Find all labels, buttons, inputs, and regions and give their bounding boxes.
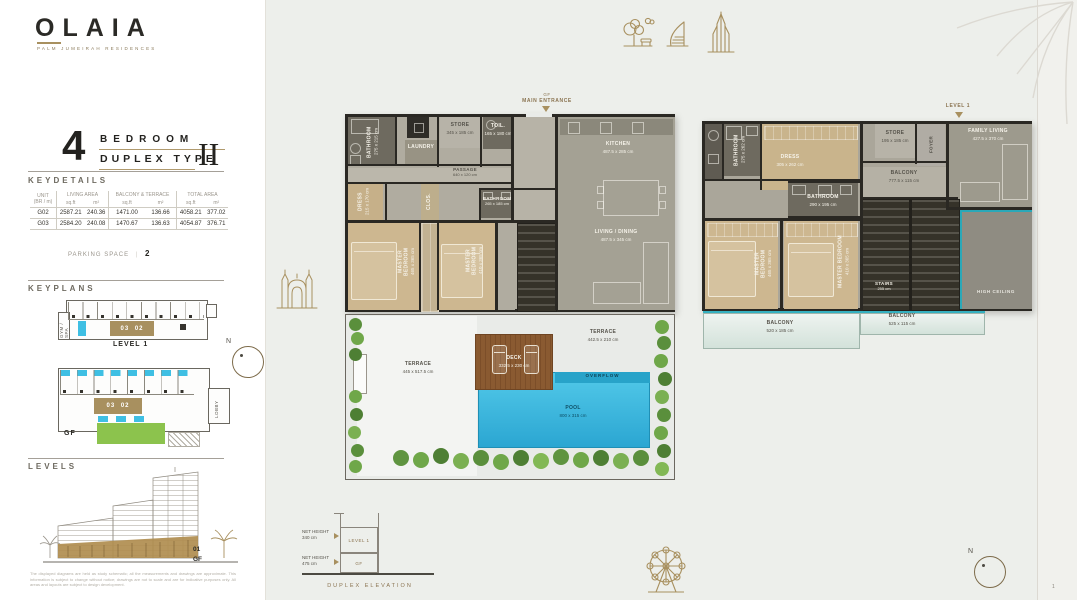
level-01-label: 01	[193, 546, 200, 553]
keyplan-level1: 03 02 GYM / SPA LEVEL 1	[58, 296, 216, 352]
closet	[421, 184, 439, 220]
kitchen-counter	[560, 119, 673, 135]
sub-sqft: sq.ft	[177, 199, 205, 208]
wall	[419, 223, 421, 310]
cell: 376.71	[204, 219, 228, 230]
keydetails-table: UNIT (BR / m) LIVING AREA BALCONY & TERR…	[30, 191, 228, 230]
wall	[480, 117, 482, 167]
level-gf-label: GF	[193, 556, 202, 563]
cell: 240.36	[84, 208, 108, 219]
gym-spa-label: GYM / SPA	[59, 314, 69, 338]
keyplans-heading: KEYPLANS	[28, 284, 96, 293]
cell: 136.63	[145, 219, 177, 230]
entrance-arrow	[542, 106, 550, 112]
store-room	[875, 124, 915, 158]
keydetails-heading: KEYDETAILS	[28, 176, 108, 185]
sun-lounger	[524, 345, 539, 374]
pool-deck	[475, 334, 553, 390]
cell: 377.02	[204, 208, 228, 219]
entrance-door-gap	[526, 113, 552, 117]
inner-balcony	[862, 167, 946, 197]
wall	[348, 182, 511, 184]
entry-foyer	[514, 117, 555, 221]
family-living-room	[948, 124, 1032, 208]
lobby-label: LOBBY	[214, 392, 219, 418]
brand-logo-underline	[37, 42, 61, 44]
wall	[348, 164, 511, 166]
net-height-label: NET HEIGHT	[302, 555, 329, 560]
wall	[479, 188, 555, 190]
level1-entrance-label: LEVEL 1	[928, 103, 988, 110]
elevation-box-gf: GF	[340, 553, 378, 573]
sofa	[643, 242, 669, 304]
wall	[860, 124, 863, 311]
bathroom	[481, 190, 513, 218]
cell: 2587.21	[57, 208, 85, 219]
wall	[555, 117, 558, 310]
title-number: 4	[62, 122, 85, 170]
elevation-level1-label: LEVEL 1	[348, 538, 369, 543]
terrace	[357, 316, 477, 476]
wall	[863, 161, 946, 163]
levels-divider	[28, 458, 224, 459]
cell: 2584.20	[57, 219, 85, 230]
highlighted-units: 03 02	[94, 398, 142, 414]
page-marker: 1	[1052, 584, 1055, 590]
sun-lounger	[492, 345, 507, 374]
cell-unit: G02	[30, 208, 57, 219]
highlighted-units: 03 02	[110, 321, 154, 336]
passage	[348, 168, 511, 182]
cell: 4058.21	[177, 208, 205, 219]
brand-logo: OLAIA	[35, 14, 153, 43]
kitchen-living-space	[558, 117, 675, 310]
trees	[393, 450, 409, 466]
col-unit-sub: (BR / m)	[34, 199, 53, 205]
keyplan-level1-caption: LEVEL 1	[113, 341, 148, 348]
wall	[511, 117, 514, 221]
title-bedroom: BEDROOM	[100, 134, 194, 145]
net-height-value: 340 cm	[302, 535, 317, 540]
store-room	[440, 117, 480, 148]
cell: 1470.67	[108, 219, 145, 230]
parking-label: PARKING SPACE	[68, 252, 129, 258]
trees	[655, 320, 669, 334]
parking-value: 2	[145, 249, 150, 258]
cell: 4054.87	[177, 219, 205, 230]
title-rule-2	[99, 169, 195, 170]
col-total-area: TOTAL AREA	[177, 191, 228, 199]
wall	[788, 181, 860, 183]
toilet	[483, 117, 513, 149]
dining-table	[603, 180, 659, 216]
entrance-label: LEVEL 1	[928, 103, 988, 110]
wall	[348, 220, 555, 223]
brand-tagline: PALM JUMEIRAH RESIDENCES	[37, 46, 156, 51]
foyer	[917, 124, 945, 166]
sub-m2: m²	[84, 199, 108, 208]
wall	[948, 207, 1032, 210]
sub-m2: m²	[204, 199, 228, 208]
table-row: G02 2587.21 240.36 1471.00 136.66 4058.2…	[30, 208, 228, 219]
burj-khalifa-icon	[708, 12, 734, 52]
parking-space: PARKING SPACE | 2	[68, 249, 150, 258]
trees	[349, 318, 362, 331]
sub-sqft: sq.ft	[108, 199, 145, 208]
gym-pool	[78, 321, 86, 336]
net-height-value: 475 cm	[302, 561, 317, 566]
ground-line	[302, 573, 434, 575]
brochure-page: OLAIA PALM JUMEIRAH RESIDENCES 4 BEDROOM…	[0, 0, 1077, 600]
bathroom	[788, 183, 858, 216]
disclaimer-text: The displayed diagrams are held as study…	[30, 571, 236, 588]
master-bedroom	[705, 221, 778, 309]
duplex-elevation-diagram: LEVEL 1 GF NET HEIGHT 340 cm NET HEIGHT …	[300, 505, 450, 597]
landmark-icons	[618, 10, 742, 56]
wall	[437, 117, 439, 167]
wall	[437, 223, 439, 310]
wall	[495, 223, 498, 310]
balcony-glass-line	[703, 311, 860, 313]
ferris-wheel-icon	[640, 546, 692, 596]
net-height-gf: NET HEIGHT 475 cm	[302, 555, 336, 568]
master-bedroom	[784, 221, 858, 309]
sidebar: OLAIA PALM JUMEIRAH RESIDENCES 4 BEDROOM…	[0, 0, 265, 600]
table-row: G03 2584.20 240.08 1470.67 136.63 4054.8…	[30, 219, 228, 230]
wall	[780, 221, 783, 309]
keyplan-gf: 03 02 LOBBY GF	[52, 364, 234, 456]
laundry-room	[405, 140, 437, 164]
pool-overflow	[555, 372, 650, 383]
burj-al-arab-icon	[667, 22, 688, 46]
balcony	[703, 313, 860, 349]
cell: 1471.00	[108, 208, 145, 219]
wall	[863, 197, 958, 199]
net-height-label: NET HEIGHT	[302, 529, 329, 534]
level1-floor-plan: LEVEL 1 BATHROOM 275 x 262 cm DRESS 305 …	[700, 103, 1037, 353]
wall	[788, 216, 860, 218]
compass-n-label: N	[968, 548, 973, 555]
wall	[915, 124, 917, 164]
sofa	[960, 182, 1000, 202]
elevator	[407, 117, 429, 138]
col-living-area: LIVING AREA	[57, 191, 109, 199]
sub-m2: m²	[145, 199, 177, 208]
archway-icon	[274, 264, 320, 314]
wall	[722, 124, 724, 179]
net-height-level1: NET HEIGHT 340 cm	[302, 529, 336, 542]
building-elevation-sketch	[38, 466, 243, 571]
master-bedroom	[439, 223, 495, 310]
gf-entrance-label: GF MAIN ENTRANCE	[519, 92, 575, 104]
sofa	[1002, 144, 1028, 200]
balcony-glass-line	[860, 311, 985, 313]
wall	[479, 190, 481, 220]
gf-staircase	[517, 223, 557, 312]
compass-north: N	[968, 548, 1010, 590]
keyplans-divider	[28, 280, 224, 281]
level1-staircase	[862, 199, 960, 311]
driveway-hatch	[168, 432, 200, 447]
utility-room	[705, 124, 722, 179]
trees	[349, 390, 362, 403]
entrance-arrow	[955, 112, 963, 118]
lawn	[97, 423, 165, 444]
wall	[395, 117, 397, 166]
sofa	[593, 282, 641, 304]
outdoor-cabinet	[353, 354, 367, 394]
bathroom	[724, 124, 760, 176]
arrow-right-icon	[334, 559, 339, 565]
title-roman: II	[198, 136, 219, 173]
wall	[385, 184, 387, 220]
gf-floor-plan: GF MAIN ENTRANCE BATHROOM 275 x 215 cm L…	[343, 92, 683, 484]
cell: 240.08	[84, 219, 108, 230]
compass-n-label: N	[226, 338, 231, 345]
park-trees-icon	[624, 18, 654, 46]
balcony	[860, 313, 985, 335]
elevation-box-level1: LEVEL 1	[340, 527, 378, 553]
sub-sqft: sq.ft	[57, 199, 85, 208]
bathroom	[348, 117, 395, 166]
keyplan-gf-caption: GF	[64, 430, 76, 437]
elevation-gf-label: GF	[355, 561, 362, 566]
col-balcony-terrace: BALCONY & TERRACE	[108, 191, 176, 199]
master-bedroom	[348, 223, 419, 310]
dress-room	[348, 184, 383, 220]
hallway	[498, 223, 515, 310]
arrow-right-icon	[334, 533, 339, 539]
high-ceiling-void	[960, 210, 1032, 309]
cell-unit: G03	[30, 219, 57, 230]
entrance-line2: MAIN ENTRANCE	[519, 98, 575, 105]
keydetails-divider	[28, 171, 224, 172]
elevation-caption: DUPLEX ELEVATION	[308, 583, 432, 589]
cell: 136.66	[145, 208, 177, 219]
